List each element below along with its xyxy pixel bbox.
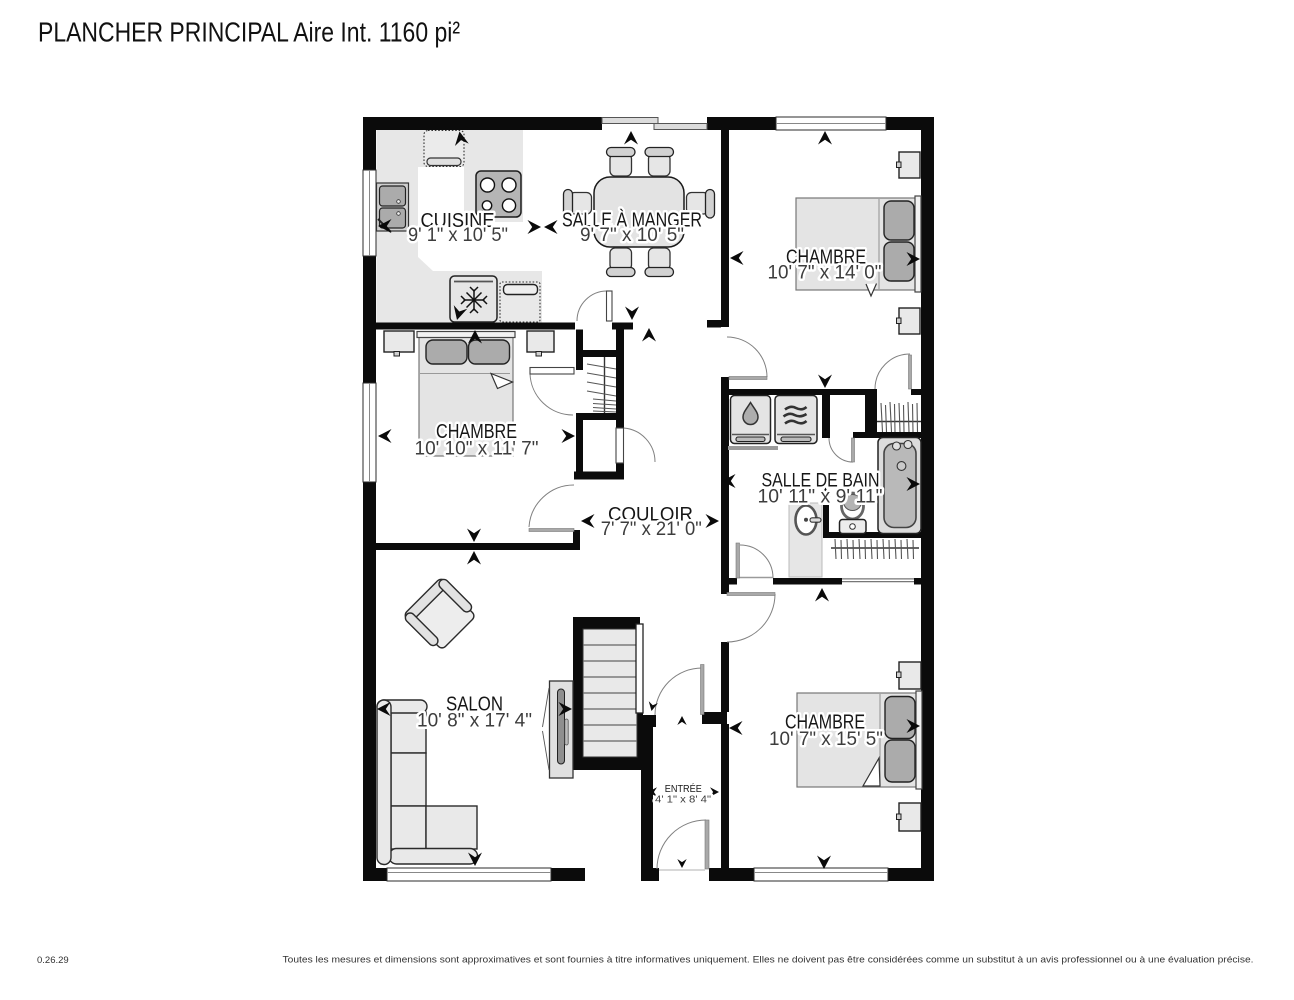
svg-text:10' 11" x 9' 11": 10' 11" x 9' 11" [758,487,883,508]
svg-text:ENTRÉE: ENTRÉE [665,782,702,795]
svg-text:10' 7" x 14' 0": 10' 7" x 14' 0" [768,263,882,284]
svg-text:10' 7" x 15' 5": 10' 7" x 15' 5" [769,729,883,750]
svg-text:0.26.29: 0.26.29 [37,955,69,966]
svg-text:4' 1" x 8' 4": 4' 1" x 8' 4" [655,795,712,806]
svg-text:9' 1" x 10' 5": 9' 1" x 10' 5" [408,225,508,246]
svg-text:Toutes les mesures et dimensio: Toutes les mesures et dimensions sont ap… [283,955,1254,966]
svg-text:10' 8" x 17' 4": 10' 8" x 17' 4" [417,711,532,732]
svg-text:9' 7" x 10' 5": 9' 7" x 10' 5" [580,225,684,246]
svg-text:PLANCHER PRINCIPAL Aire Int. 1: PLANCHER PRINCIPAL Aire Int. 1160 pi² [38,16,460,47]
svg-text:7' 7" x 21' 0": 7' 7" x 21' 0" [601,519,702,540]
svg-text:10' 10" x 11' 7": 10' 10" x 11' 7" [415,439,539,460]
